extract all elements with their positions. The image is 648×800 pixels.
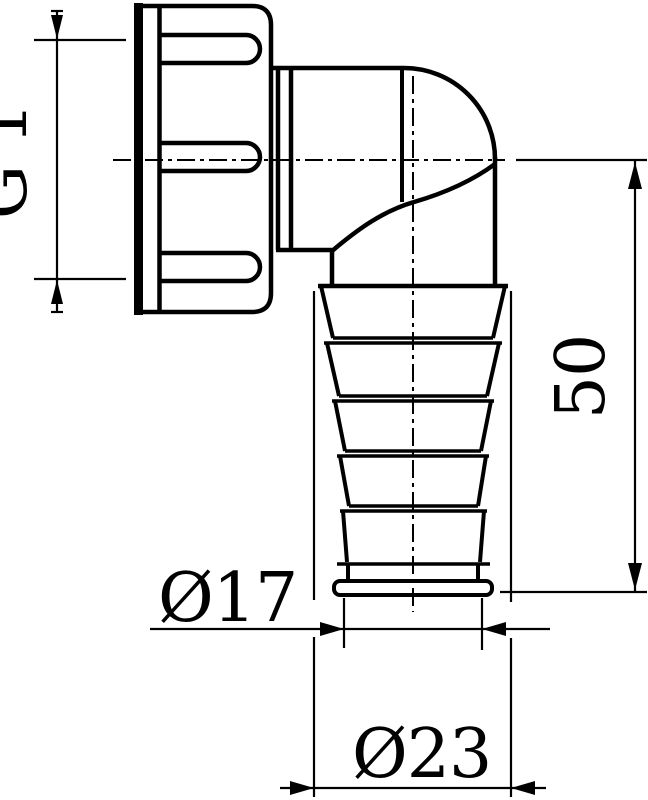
technical-drawing-page: G 1" 50 Ø17 Ø23 bbox=[0, 0, 648, 800]
cone-band4-right bbox=[478, 456, 486, 506]
cone-band3-left bbox=[335, 401, 345, 451]
d23-arrowhead-left bbox=[290, 781, 314, 795]
drawing-canvas: G 1" 50 Ø17 Ø23 bbox=[0, 0, 648, 800]
cone-band5-right bbox=[480, 511, 484, 562]
cone-band2-right bbox=[487, 343, 499, 396]
cone-band5-left bbox=[343, 511, 347, 562]
d17-arrowhead-right bbox=[482, 622, 506, 636]
dimension-height-50: 50 bbox=[500, 160, 647, 592]
nut-thread-slot-middle bbox=[159, 143, 260, 171]
nut-thread-slot-top bbox=[159, 35, 260, 63]
h50-arrowhead-bottom bbox=[628, 563, 642, 590]
g1-arrowhead-top bbox=[51, 15, 63, 39]
elbow-outer-arc bbox=[404, 68, 495, 159]
d23-arrowhead-right bbox=[511, 781, 535, 795]
cone-band1-right bbox=[493, 286, 505, 338]
outlet-diameter-label: Ø17 bbox=[158, 559, 297, 638]
dimension-thread-g1: G 1" bbox=[0, 11, 126, 312]
cone-diameter-label: Ø23 bbox=[352, 715, 491, 794]
cone-band2-left bbox=[327, 343, 339, 396]
cone-band3-right bbox=[481, 401, 491, 451]
cone-band4-left bbox=[340, 456, 349, 506]
height-dimension-label: 50 bbox=[542, 335, 621, 420]
nut-thread-slot-bottom bbox=[159, 253, 260, 281]
h50-arrowhead-top bbox=[628, 162, 642, 189]
g1-arrowhead-bottom bbox=[51, 280, 63, 304]
d17-arrowhead-left bbox=[320, 622, 344, 636]
cone-band1-left bbox=[321, 286, 333, 338]
elbow-body bbox=[271, 68, 495, 286]
thread-size-label: G 1" bbox=[0, 73, 43, 219]
